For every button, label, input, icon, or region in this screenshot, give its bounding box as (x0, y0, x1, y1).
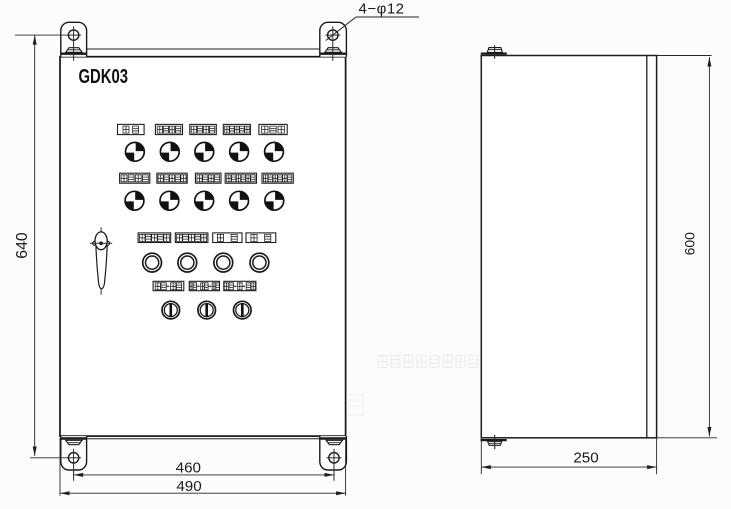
svg-text:600: 600 (681, 232, 697, 256)
svg-text:460: 460 (176, 460, 201, 477)
svg-text:GDK03: GDK03 (79, 66, 129, 88)
svg-text:640: 640 (14, 232, 31, 259)
svg-text:250: 250 (573, 450, 598, 467)
svg-text:4−φ12: 4−φ12 (359, 1, 405, 18)
svg-text:490: 490 (176, 478, 201, 495)
